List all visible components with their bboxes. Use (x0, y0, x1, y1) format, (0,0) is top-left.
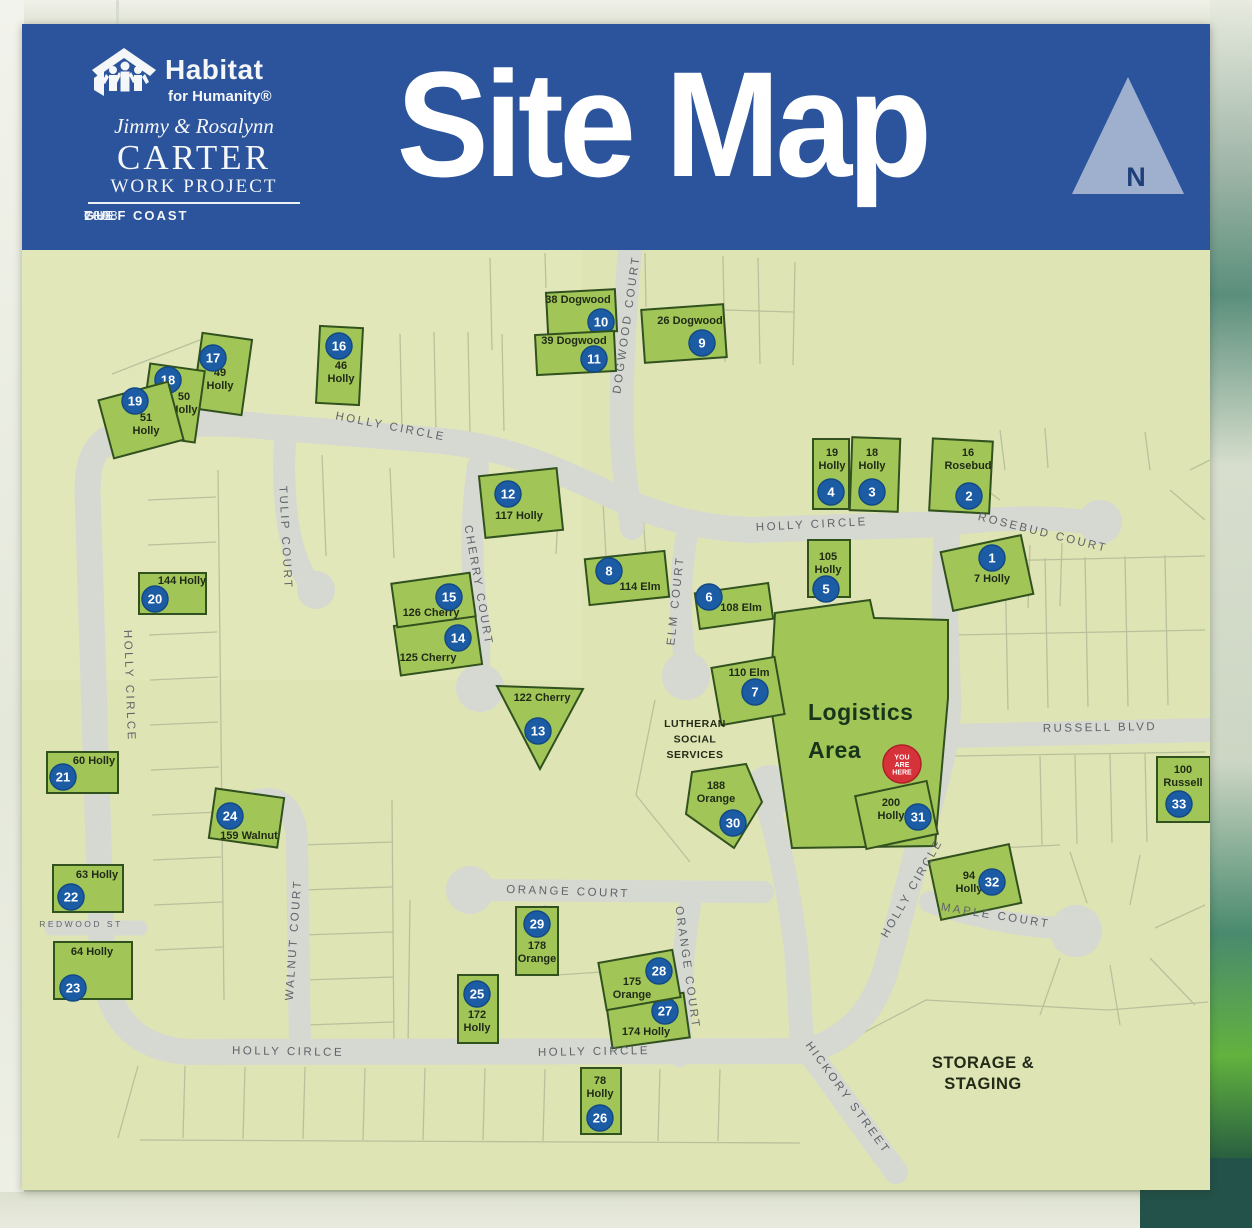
divider-rule (88, 202, 300, 204)
lot-20: 144 Holly20 (139, 573, 207, 614)
lot-address-label: 63 Holly (76, 869, 119, 881)
map-tint (22, 250, 582, 680)
lot-address-label: 188 (707, 780, 725, 792)
cul-de-sac (297, 571, 335, 609)
lot-number: 23 (66, 981, 80, 996)
lot-address-label: 94 (963, 870, 976, 882)
street-label: REDWOOD ST (39, 919, 123, 929)
logistics-area-label: Area (808, 737, 861, 763)
photo-background-right (1210, 0, 1252, 1228)
you-are-here-badge: YOUAREHERE (883, 745, 921, 783)
lot-address-label: 200 (882, 797, 900, 809)
habitat-wordmark: Habitat (165, 54, 263, 86)
lot-address-label: Holly (878, 810, 906, 822)
lot-address-label: Holly (859, 460, 887, 472)
lot-address-label: 108 Elm (720, 602, 762, 614)
lot-address-label: Holly (819, 460, 847, 472)
lot-address-label: 46 (335, 360, 347, 372)
lot-number: 24 (223, 809, 238, 824)
lot-number: 20 (148, 592, 162, 607)
lot-4: 19Holly4 (813, 439, 849, 509)
lot-address-label: Holly (464, 1022, 492, 1034)
carter-text: CARTER (84, 138, 304, 178)
lot-10: 38 Dogwood10 (545, 289, 617, 335)
lot-address-label: Holly (207, 380, 235, 392)
cul-de-sac (1050, 905, 1102, 957)
photo-background-bottom (0, 1192, 1252, 1228)
lot-address-label: 144 Holly (158, 575, 207, 587)
lot-address-label: 7 Holly (974, 573, 1011, 585)
logistics-area-label: Logistics (808, 699, 913, 725)
year-text: 2008 (84, 208, 119, 223)
lot-address-label: 16 (962, 447, 974, 459)
lot-address-label: 114 Elm (620, 581, 661, 593)
lot-address-label: 19 (826, 447, 838, 459)
lot-address-label: 125 Cherry (400, 652, 458, 664)
lot-16: 46Holly16 (316, 326, 363, 405)
lot-number: 7 (751, 685, 758, 700)
cul-de-sac (662, 652, 710, 700)
lot-parcel (479, 468, 563, 538)
lot-address-label: Holly (815, 564, 843, 576)
lot-number: 15 (442, 590, 456, 605)
lot-address-label: 159 Walnut (220, 830, 278, 842)
lot-5: 105Holly5 (808, 540, 850, 602)
lot-address-label: 117 Holly (495, 510, 544, 522)
lot-number: 21 (56, 770, 70, 785)
lot-address-label: Holly (587, 1088, 615, 1100)
cul-de-sac (446, 866, 494, 914)
lot-number: 3 (868, 485, 875, 500)
lot-address-label: Orange (697, 793, 736, 805)
lot-number: 31 (911, 810, 925, 825)
lot-7: 110 Elm7 (711, 657, 784, 725)
lot-number: 22 (64, 890, 78, 905)
lot-number: 33 (1172, 797, 1186, 812)
lot-address-label: 105 (819, 551, 837, 563)
lot-number: 32 (985, 875, 999, 890)
lot-26: 78Holly26 (581, 1068, 621, 1134)
lot-address-label: 178 (528, 940, 546, 952)
lot-number: 16 (332, 339, 346, 354)
lot-number: 8 (605, 564, 612, 579)
lot-number: 13 (531, 724, 545, 739)
lot-number: 1 (988, 551, 995, 566)
lot-address-label: Orange (518, 953, 557, 965)
you-are-here-text: ARE (895, 762, 910, 769)
lot-number: 25 (470, 987, 484, 1002)
site-map-drawing: 7 Holly116Rosebud218Holly319Holly4105Hol… (22, 250, 1210, 1190)
lutheran-social-services-label: SERVICES (667, 749, 724, 761)
storage-staging-label: STORAGE & (932, 1054, 1034, 1072)
lot-address-label: 110 Elm (729, 667, 770, 679)
lot-number: 30 (726, 816, 740, 831)
photo-of-site-map-sign: { "header": { "title": "Site Map", "nort… (0, 0, 1252, 1228)
lot-number: 6 (705, 590, 712, 605)
you-are-here-text: YOU (894, 755, 909, 762)
lot-address-label: 18 (866, 447, 878, 459)
lot-address-label: Holly (133, 425, 161, 437)
lot-21: 60 Holly21 (47, 752, 118, 793)
lot-address-label: Holly (328, 373, 356, 385)
lot-number: 27 (658, 1004, 672, 1019)
street-label: HOLLY CIRLCE (232, 1045, 344, 1059)
street-label: RUSSELL BLVD (1043, 721, 1158, 735)
lot-address-label: 26 Dogwood (657, 315, 722, 327)
lot-address-label: 172 (468, 1009, 486, 1021)
lot-address-label: 50 (178, 391, 190, 403)
lot-number: 17 (206, 351, 220, 366)
lot-number: 9 (698, 336, 705, 351)
lot-address-label: Orange (613, 989, 652, 1001)
lot-address-label: 122 Cherry (514, 692, 572, 704)
lot-number: 5 (822, 582, 829, 597)
lot-24: 159 Walnut24 (209, 788, 284, 847)
lot-number: 10 (594, 315, 608, 330)
for-humanity-wordmark: for Humanity® (168, 88, 272, 105)
work-project-text: WORK PROJECT (84, 176, 304, 198)
lot-address-label: 175 (623, 976, 641, 988)
lot-address-label: Rosebud (944, 460, 991, 472)
lot-address-label: 174 Holly (622, 1026, 671, 1038)
lot-number: 11 (587, 352, 601, 367)
jimmy-rosalynn-text: Jimmy & Rosalynn (84, 114, 304, 139)
lot-number: 4 (827, 485, 835, 500)
lutheran-social-services-label: LUTHERAN (664, 718, 726, 730)
lot-address-label: 100 (1174, 764, 1192, 776)
lot-number: 19 (128, 394, 142, 409)
lot-23: 64 Holly23 (54, 942, 132, 1001)
lot-25: 172Holly25 (458, 975, 498, 1043)
lot-33: 100Russell33 (1157, 757, 1210, 822)
lot-number: 29 (530, 917, 544, 932)
lot-9: 26 Dogwood9 (641, 304, 726, 363)
lot-8: 114 Elm8 (585, 551, 669, 605)
photo-background-top (0, 0, 1252, 26)
lot-number: 2 (965, 489, 972, 504)
lot-12: 117 Holly12 (479, 468, 563, 538)
lutheran-social-services-label: SOCIAL (674, 734, 717, 746)
lot-address-label: 64 Holly (71, 946, 114, 958)
lot-address-label: 78 (594, 1075, 606, 1087)
lot-parcel (641, 304, 726, 363)
street-label: HOLLY CIRCLE (538, 1045, 650, 1059)
storage-staging-label: STAGING (944, 1075, 1021, 1093)
lot-address-label: Russell (1163, 777, 1202, 789)
lot-number: 26 (593, 1111, 607, 1126)
lot-2: 16Rosebud2 (929, 438, 993, 513)
lot-number: 14 (451, 631, 466, 646)
you-are-here-text: HERE (892, 770, 912, 777)
lot-22: 63 Holly22 (53, 865, 123, 912)
lot-address-label: 60 Holly (73, 755, 116, 767)
lot-3: 18Holly3 (850, 437, 901, 512)
lot-29: 178Orange29 (516, 907, 558, 975)
cul-de-sac (456, 664, 504, 712)
sign-title: Site Map (312, 38, 1011, 211)
lot-number: 12 (501, 487, 515, 502)
sign-header: Habitat for Humanity® Jimmy & Rosalynn C… (22, 24, 1210, 250)
lot-address-label: 51 (140, 412, 152, 424)
lot-number: 28 (652, 964, 666, 979)
lot-address-label: 39 Dogwood (541, 335, 606, 347)
svg-text:N: N (1126, 162, 1146, 192)
lot-11: 39 Dogwood11 (535, 331, 616, 375)
lot-address-label: 38 Dogwood (545, 294, 610, 306)
photo-background-left (0, 0, 24, 1228)
